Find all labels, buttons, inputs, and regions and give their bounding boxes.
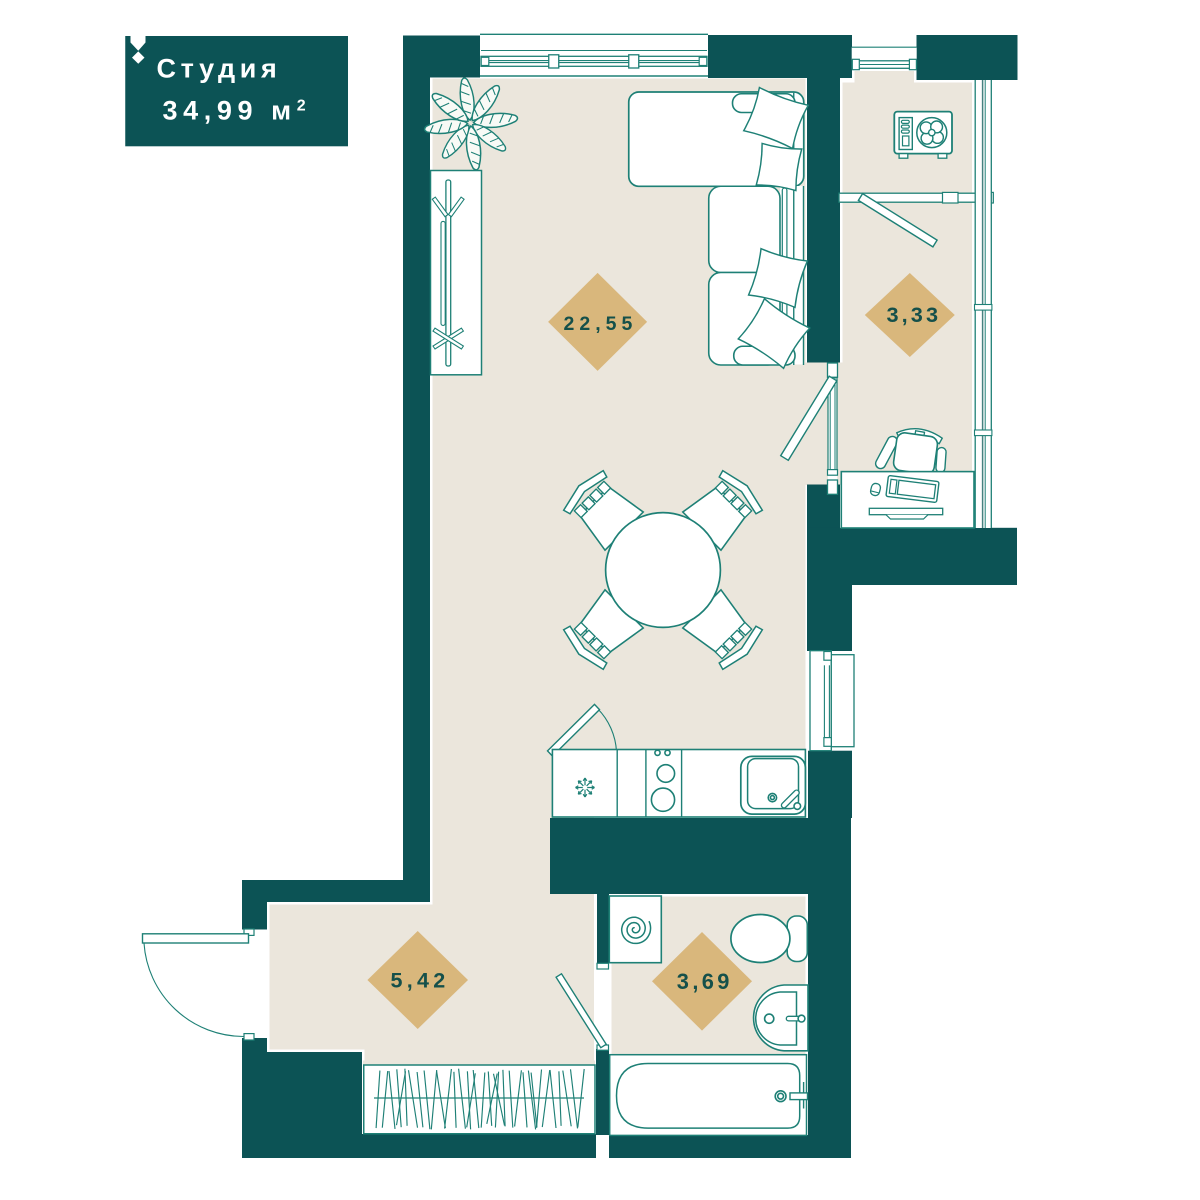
svg-text:5,42: 5,42 <box>391 969 450 993</box>
svg-text:3,69: 3,69 <box>677 969 733 994</box>
svg-text:22,55: 22,55 <box>564 313 638 335</box>
svg-text:34,99 м2: 34,99 м2 <box>163 96 312 126</box>
svg-text:3,33: 3,33 <box>887 302 942 327</box>
svg-text:Студия: Студия <box>157 54 282 84</box>
